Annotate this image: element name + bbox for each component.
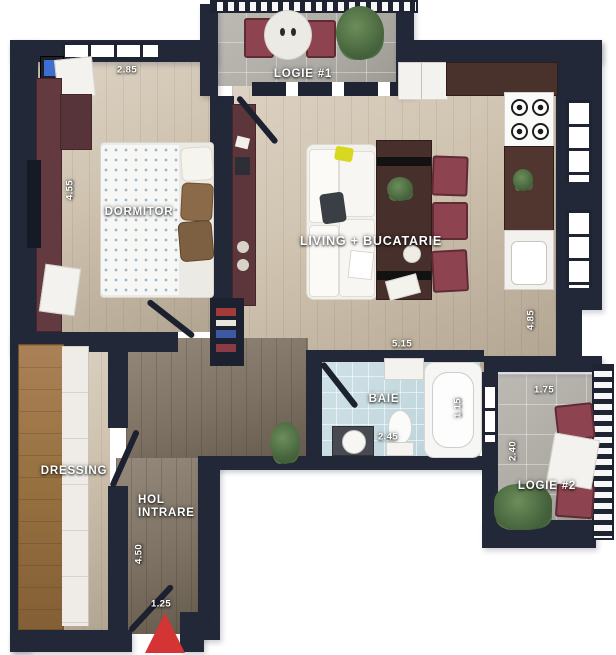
label-logie1: LOGIE #1	[274, 68, 332, 80]
kitchen-counter-top	[446, 62, 558, 96]
bed	[100, 142, 214, 298]
sofa	[306, 144, 378, 300]
wall-balcony1-left	[200, 4, 218, 96]
sofa-tray	[348, 250, 375, 280]
dining-chair-1	[431, 155, 468, 196]
hall-plant	[270, 422, 300, 464]
kitchen-window-1	[566, 100, 592, 182]
wall-balcony2-north	[484, 356, 602, 372]
console-plate-2	[237, 259, 249, 271]
dim-baie-width: 2.45	[378, 432, 398, 443]
stove-burner-3	[511, 123, 528, 140]
bookshelf-books-blue	[216, 330, 236, 338]
stove-burner-2	[532, 99, 549, 116]
dim-hol-length: 4.50	[134, 544, 145, 564]
bed-pillow-white	[180, 146, 214, 182]
kitchen-sink-unit	[504, 230, 554, 290]
living-console	[232, 104, 256, 306]
balcony1-railing	[210, 0, 418, 13]
balcony1-table	[264, 10, 312, 60]
toilet-tank	[386, 442, 414, 456]
dim-logie2-length: 2.40	[508, 441, 519, 461]
bookshelf-books-maroon	[216, 344, 236, 352]
bath-shelf	[384, 358, 424, 380]
table-runner-1	[377, 157, 431, 166]
dressing-shelf	[62, 346, 89, 626]
console-plate-1	[237, 241, 249, 253]
balcony1-plant	[336, 6, 384, 60]
label-logie2: LOGIE #2	[518, 480, 576, 492]
dim-living-length: 4.85	[526, 310, 537, 330]
dressing-wardrobe	[18, 344, 64, 630]
wall-balcony2-west-a	[482, 372, 498, 386]
balcony2-window	[482, 384, 498, 442]
label-hol-intrare: HOL INTRARE	[138, 494, 195, 520]
dim-entrance-width: 1.25	[151, 599, 171, 610]
stove	[504, 92, 554, 148]
label-dressing: DRESSING	[41, 465, 107, 477]
entrance-marker-triangle	[145, 613, 185, 653]
label-dormitor: DORMITOR	[105, 206, 174, 218]
bed-pillow-brown-1	[180, 182, 214, 222]
stove-burner-1	[511, 99, 528, 116]
bookshelf	[210, 298, 244, 366]
bath-sink	[342, 430, 366, 454]
tv-panel	[27, 160, 41, 248]
table-plant	[387, 177, 413, 201]
bed-pillow-brown-2	[177, 220, 214, 263]
console-item-paper	[235, 136, 250, 150]
dining-chair-3	[431, 249, 469, 293]
dining-table	[376, 140, 432, 300]
label-living: LIVING + BUCATARIE	[300, 234, 442, 248]
kitchen-counter-right	[504, 146, 554, 232]
wall-bathroom-west	[306, 350, 322, 460]
floor-plan: LOGIE #1 DORMITOR LIVING + BUCATARIE BAI…	[0, 0, 616, 655]
sofa-throw-dark	[319, 191, 347, 224]
dim-dormitor-width: 2.85	[117, 65, 137, 76]
balcony1-table-cup-1	[280, 28, 285, 36]
fridge	[398, 62, 448, 100]
balcony1-table-cup-2	[291, 28, 296, 36]
sink-basin	[511, 241, 547, 285]
fridge-door-line	[421, 63, 422, 99]
dim-baie-tub-width: 1.15	[453, 398, 464, 418]
floor-papers	[39, 264, 81, 317]
wall-south-mid	[198, 456, 484, 470]
stove-burner-4	[532, 123, 549, 140]
dim-living-width: 5.15	[392, 339, 412, 350]
label-hol-line2: INTRARE	[138, 507, 195, 520]
console-item-dark	[235, 157, 250, 175]
bath-vanity	[332, 426, 374, 456]
bedroom-cabinet	[60, 94, 92, 150]
bookshelf-books-white	[216, 320, 236, 326]
balcony1-sliding-door	[252, 82, 398, 96]
bed-blanket	[101, 145, 179, 295]
wall-dressing-east-upper	[108, 338, 128, 428]
wall-dressing-east-lower	[108, 486, 128, 634]
label-hol-line1: HOL	[138, 494, 195, 507]
dim-dormitor-length: 4.55	[65, 180, 76, 200]
dim-logie2-width: 1.75	[534, 385, 554, 396]
kitchen-window-2	[566, 210, 592, 288]
bookshelf-books-red	[216, 308, 236, 316]
label-baie: BAIE	[369, 393, 400, 405]
kitchen-plant	[513, 169, 533, 191]
sofa-pillow-yellow	[334, 146, 354, 163]
